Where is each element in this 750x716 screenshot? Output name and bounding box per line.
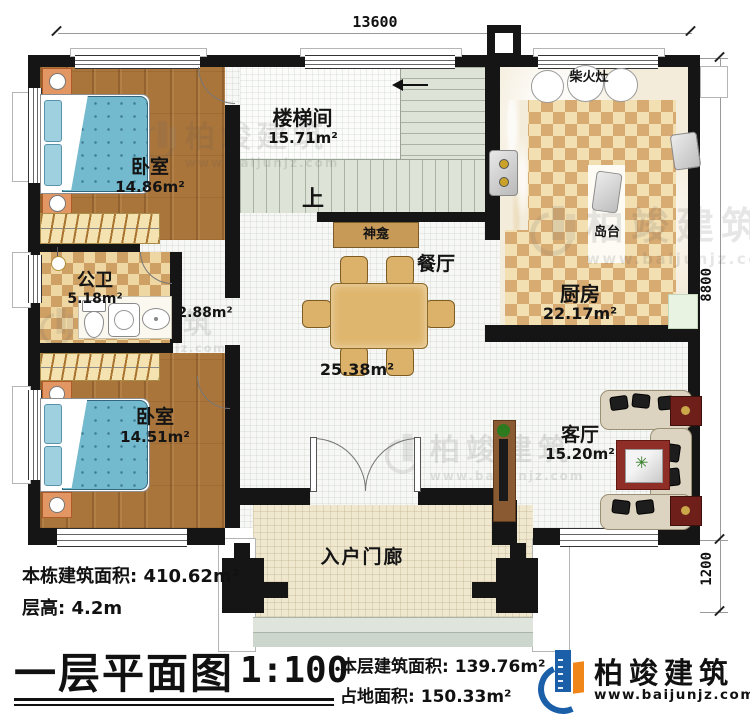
- dimension-line-right: [720, 58, 721, 540]
- dimension-line-top: [58, 33, 692, 34]
- tv-cabinet: [493, 420, 516, 522]
- floor-height-value: 4.2m: [71, 598, 122, 619]
- dining-area: 25.38m²: [312, 362, 402, 379]
- stair-flight-right: [400, 67, 486, 159]
- wall-hall-right: [225, 240, 240, 298]
- wall-bedroom2-right: [225, 345, 240, 528]
- bedroom2-area: 14.51m²: [105, 430, 205, 446]
- sofa-pillow: [635, 499, 655, 515]
- sink-drain-icon: [154, 317, 158, 321]
- island-sink-icon: [591, 170, 622, 213]
- stove-label: 柴火灶: [551, 71, 627, 85]
- brand-logo-icon: [538, 648, 588, 706]
- page-title: 一层平面图: [14, 640, 234, 701]
- living-area: 15.20m²: [542, 447, 618, 463]
- wall-dining-bottom-right: [418, 488, 493, 505]
- porch-pillar-right-cap: [510, 543, 526, 558]
- side-table: [670, 496, 702, 526]
- dimension-porch-label: 1200: [699, 552, 715, 586]
- gas-hob-icon: [489, 150, 518, 196]
- bed-pillow: [44, 446, 62, 486]
- title-underline-2: [14, 704, 334, 706]
- wardrobe: [40, 353, 160, 381]
- bedroom1-area: 14.86m²: [100, 180, 200, 196]
- total-area-value: 410.62m²: [143, 566, 239, 587]
- plant-icon: [497, 424, 510, 437]
- bed-sheet: [62, 400, 88, 488]
- floor-height-row: 层高: 4.2m: [22, 594, 122, 620]
- wall-bathroom-bottom: [28, 343, 173, 353]
- shrine-label: 神龛: [363, 228, 389, 242]
- window-living-bottom: [560, 528, 658, 547]
- porch-pillar-left-cap: [234, 543, 250, 558]
- tv-icon: [499, 439, 508, 501]
- bed-pillow: [44, 100, 62, 142]
- window-sill: [700, 66, 728, 98]
- sink-icon: [142, 308, 170, 330]
- bathroom-label: 公卫: [55, 272, 135, 291]
- dimension-line-right-porch: [720, 540, 721, 612]
- wall-dining-bottom-left: [240, 488, 310, 505]
- entry-door-panel-right: [414, 437, 421, 492]
- entry-door-panel-left: [310, 437, 317, 492]
- kitchen-label: 厨房: [545, 284, 615, 305]
- sofa-pillow: [609, 395, 629, 411]
- scale-label: 1:100: [240, 650, 348, 691]
- kitchen-appliance: [668, 294, 698, 329]
- hall-area: 2.88m²: [176, 306, 234, 321]
- porch-pillar-right: [496, 558, 538, 613]
- kitchen-area: 22.17m²: [540, 306, 620, 323]
- table-lamp-icon: [681, 506, 690, 515]
- wardrobe: [40, 213, 160, 244]
- footprint-value: 150.33m²: [421, 687, 512, 707]
- total-area-label: 本栋建筑面积:: [22, 566, 137, 587]
- living-label: 客厅: [545, 426, 615, 446]
- floor-area-value: 139.76m²: [455, 657, 546, 677]
- sofa-pillow: [631, 393, 650, 409]
- brand-name: 柏竣建筑: [594, 650, 734, 692]
- lamp-icon: [49, 497, 65, 513]
- floor-area-label: 本层建筑面积:: [340, 657, 449, 677]
- bed-pillow: [44, 404, 62, 444]
- stairwell-area: 15.71m²: [258, 131, 348, 147]
- brand-building-orange-icon: [573, 661, 584, 694]
- island-label: 岛台: [588, 226, 626, 240]
- title-underline: [14, 698, 334, 701]
- dimension-height-label: 8800: [699, 268, 715, 302]
- footprint-row: 占地面积: 150.33m²: [340, 682, 512, 707]
- side-table: [670, 396, 702, 426]
- dimension-ext: [700, 58, 728, 59]
- table-lamp-icon: [681, 406, 690, 415]
- dimension-tick: [685, 26, 696, 37]
- burner-icon: [499, 177, 509, 187]
- bed-pillow: [44, 144, 62, 186]
- rug: ✳: [616, 440, 670, 490]
- stair-direction-line: [402, 84, 428, 86]
- window-bedroom2-bottom: [57, 528, 187, 547]
- wall-bedroom1-right: [225, 105, 240, 240]
- washer-door-icon: [114, 310, 134, 330]
- dining-chair: [425, 300, 455, 328]
- wall-stair-bottom: [317, 212, 487, 222]
- porch-label: 入户门廊: [290, 548, 435, 568]
- porch-step-2: [253, 632, 533, 647]
- dimension-tick: [51, 26, 62, 37]
- brand-building-blue-icon: [555, 650, 571, 692]
- window-kitchen-top: [538, 55, 658, 69]
- sink-icon: [670, 131, 702, 170]
- porch-step-1: [253, 617, 533, 633]
- bedroom2-label: 卧室: [105, 408, 205, 428]
- brand-url: www.baijunjz.com: [594, 687, 750, 703]
- stairwell-label: 楼梯间: [255, 108, 350, 129]
- nightstand: [42, 68, 72, 96]
- sofa-pillow: [611, 499, 631, 515]
- ceiling-lamp-icon: [51, 256, 66, 271]
- floorplan-canvas: 13600 8800 1200 柏竣建筑 www.baijunjz.com 柏竣…: [0, 0, 750, 716]
- bathroom-area: 5.18m²: [55, 292, 135, 307]
- window-bathroom-left: [28, 255, 42, 303]
- dining-label: 餐厅: [400, 255, 472, 275]
- stair-up-label: 上: [298, 188, 328, 211]
- dimension-ext: [700, 612, 728, 613]
- window-stairwell-top: [305, 55, 455, 69]
- total-area-row: 本栋建筑面积: 410.62m²: [22, 562, 240, 588]
- dining-chair: [340, 256, 368, 286]
- dimension-ext: [700, 540, 728, 541]
- porch-pillar-right-arm: [472, 582, 496, 598]
- floor-area-row: 本层建筑面积: 139.76m²: [340, 652, 546, 677]
- floor-height-label: 层高:: [22, 598, 65, 619]
- washer-icon: [108, 303, 140, 337]
- chimney-flue: [495, 33, 513, 53]
- dining-chair: [302, 300, 332, 328]
- window-bedroom1-top: [75, 55, 200, 69]
- stair-flight-bottom: [240, 159, 485, 213]
- stair-arrow-icon: [392, 79, 403, 91]
- bed-sheet: [62, 96, 88, 190]
- lamp-icon: [49, 73, 66, 90]
- burner-icon: [499, 159, 509, 169]
- plant-icon: ✳: [635, 455, 648, 471]
- bedroom1-label: 卧室: [100, 158, 200, 178]
- shrine: 神龛: [333, 222, 419, 248]
- footprint-label: 占地面积:: [340, 687, 415, 707]
- dimension-width-label: 13600: [320, 13, 430, 31]
- porch-pillar-left-arm: [264, 582, 288, 598]
- nightstand: [42, 492, 72, 518]
- dining-table: [330, 283, 428, 349]
- lamp-icon: [49, 195, 66, 212]
